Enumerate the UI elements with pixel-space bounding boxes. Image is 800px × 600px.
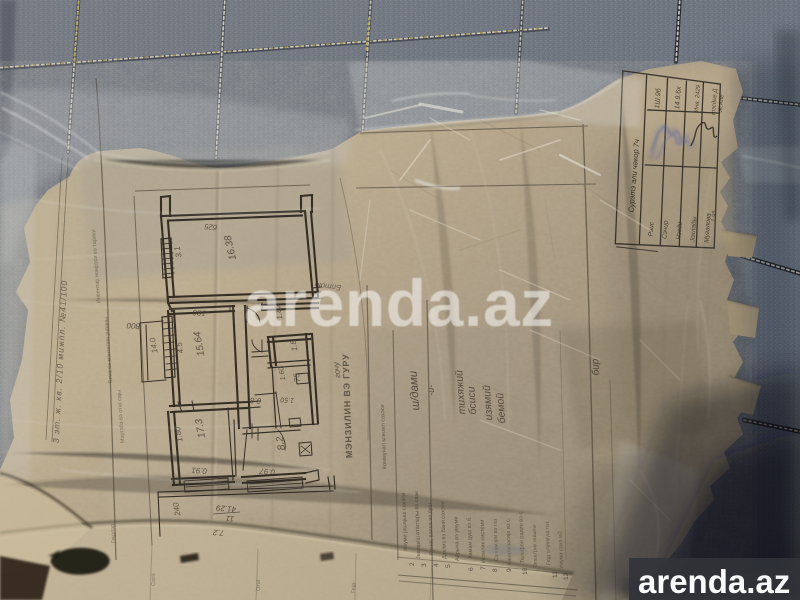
svg-text:бсиси: бсиси [465,386,479,415]
svg-text:Гејд: Гејд [351,582,357,593]
svg-text:0.91: 0.91 [191,466,207,476]
svg-text:изямий: изямий [481,385,495,421]
svg-text:Сахэ: Сахэ [151,573,157,586]
svg-text:0.97: 0.97 [259,467,276,477]
svg-text:2: 2 [409,562,416,566]
svg-text:4: 4 [433,563,440,567]
svg-text:8: 8 [492,568,499,572]
svg-text:Отаг: Отаг [256,579,262,591]
svg-text:11: 11 [225,514,234,524]
svg-text:-и-: -и- [426,384,437,396]
svg-text:0.8: 0.8 [249,396,261,406]
svg-text:800: 800 [126,321,140,331]
svg-text:5: 5 [445,564,452,568]
svg-text:7: 7 [480,566,487,570]
svg-text:3.1: 3.1 [173,246,184,259]
svg-text:arenda.az: arenda.az [638,563,790,600]
svg-text:3: 3 [421,563,428,567]
svg-text:б25: б25 [203,222,217,232]
svg-text:1.50: 1.50 [280,395,294,403]
svg-text:arenda.az: arenda.az [244,266,554,340]
svg-text:бемой: бемой [494,392,508,423]
svg-text:1Ш.9б: 1Ш.9б [653,87,663,109]
svg-text:7.2: 7.2 [212,528,224,538]
svg-text:10: 10 [522,567,529,575]
svg-text:6: 6 [468,567,475,571]
